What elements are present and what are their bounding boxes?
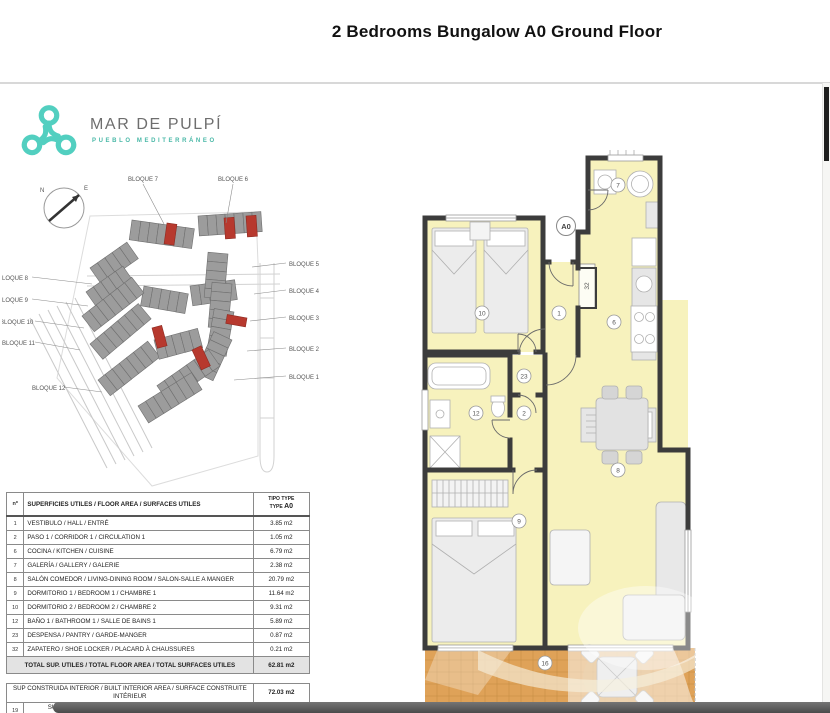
chair	[626, 451, 642, 464]
block-label: BLOQUE 8	[2, 276, 29, 282]
entry-steps	[610, 150, 634, 155]
dining-table	[596, 398, 648, 450]
col-type-header: TIPO TYPETYPE A0	[253, 493, 309, 517]
pillow	[487, 231, 525, 246]
table-row: 23DESPENSA / PANTRY / GARDE-MANGER0.87 m…	[7, 629, 310, 643]
table-row: 32ZAPATERO / SHOE LOCKER / PLACARD À CHA…	[7, 643, 310, 657]
table-row: 6COCINA / KITCHEN / CUISINE6.79 m2	[7, 545, 310, 559]
table-row: 12BAÑO 1 / BATHROOM 1 / SALLE DE BAINS 1…	[7, 615, 310, 629]
page: 2 Bedrooms Bungalow A0 Ground Floor MAR …	[0, 0, 830, 713]
boiler	[627, 171, 653, 197]
stove	[631, 306, 657, 352]
block-label: BLOQUE 12	[32, 386, 66, 392]
bottom-toolbar	[53, 702, 830, 713]
table-row: 10DORMITORIO 2 / BEDROOM 2 / CHAMBRE 29.…	[7, 601, 310, 615]
unit-badge: A0	[561, 222, 571, 231]
site-plan: N E	[2, 168, 330, 490]
room-number-terrace: 16	[541, 661, 549, 668]
table-row: 8SALÓN COMEDOR / LIVING-DINING ROOM / SA…	[7, 573, 310, 587]
scrollbar-thumb[interactable]	[824, 87, 829, 161]
kitchen-sink	[636, 276, 652, 292]
block-label: BLOQUE 7	[128, 177, 159, 183]
total-floor-area-row: TOTAL SUP. UTILES / TOTAL FLOOR AREA / T…	[7, 657, 310, 674]
block-label: BLOQUE 9	[2, 298, 29, 304]
armchair	[550, 530, 590, 585]
svg-text:N: N	[40, 188, 44, 194]
room-number-kitchen: 6	[612, 320, 616, 327]
brand-name: MAR DE PULPÍ	[90, 116, 222, 134]
summary-row: SUP CONSTRUIDA INTERIOR / BUILT INTERIOR…	[7, 684, 310, 703]
col-title-header: SUPERFICIES UTILES / FLOOR AREA / SURFAC…	[24, 493, 253, 517]
svg-text:E: E	[84, 186, 88, 192]
nightstand	[470, 222, 490, 240]
table-row: 9DORMITORIO 1 / BEDROOM 1 / CHAMBRE 111.…	[7, 587, 310, 601]
brand-tagline: PUEBLO MEDITERRÁNEO	[92, 138, 217, 144]
floor-plan: 7 A0 10 1 32 6 23 2 12 8 9 16	[418, 150, 708, 710]
table-row: 2PASO 1 / CORRIDOR 1 / CIRCULATION 11.05…	[7, 531, 310, 545]
scrollbar-track[interactable]	[822, 83, 830, 713]
room-number-pantry: 23	[520, 374, 528, 381]
compass-icon: N E	[40, 186, 88, 228]
pillow	[478, 521, 514, 536]
chair	[602, 386, 618, 399]
brand-logo: MAR DE PULPÍ PUEBLO MEDITERRÁNEO	[18, 100, 298, 170]
table-row: 1VESTIBULO / HALL / ENTRÉ3.85 m2	[7, 516, 310, 531]
block-label: BLOQUE 6	[218, 177, 249, 183]
block-label: BLOQUE 11	[2, 341, 36, 347]
galeria-counter	[646, 202, 658, 228]
triskelion-logo-icon	[18, 102, 80, 164]
block-label: BLOQUE 1	[289, 375, 320, 381]
room-number-corridor: 2	[522, 411, 526, 418]
room-number-bathroom: 12	[472, 411, 480, 418]
room-number-living: 8	[616, 468, 620, 475]
bed-double	[432, 518, 516, 642]
chair	[626, 386, 642, 399]
room-number-galeria: 7	[616, 183, 620, 190]
chair	[602, 451, 618, 464]
area-table: nº SUPERFICIES UTILES / FLOOR AREA / SUR…	[6, 492, 310, 713]
fridge	[632, 238, 656, 266]
block-label: BLOQUE 2	[289, 347, 320, 353]
room-number-bedroom2: 10	[478, 311, 486, 318]
pillow	[435, 231, 473, 246]
washbasin	[430, 400, 450, 428]
block-label: BLOQUE 3	[289, 316, 320, 322]
table-row: 7GALERÍA / GALLERY / GALERIE2.38 m2	[7, 559, 310, 573]
col-num-header: nº	[7, 493, 24, 517]
block-label: BLOQUE 5	[289, 262, 320, 268]
block-label: BLOQUE 4	[289, 289, 320, 295]
page-title: 2 Bedrooms Bungalow A0 Ground Floor	[165, 22, 829, 42]
header-divider	[0, 82, 830, 84]
block-label: BLOQUE 10	[2, 320, 34, 326]
room-number-shoe-locker: 32	[584, 282, 591, 290]
table-header-row: nº SUPERFICIES UTILES / FLOOR AREA / SUR…	[7, 493, 310, 517]
room-number-bedroom1: 9	[517, 519, 521, 526]
room-number-hall: 1	[557, 311, 561, 318]
pillow	[436, 521, 472, 536]
